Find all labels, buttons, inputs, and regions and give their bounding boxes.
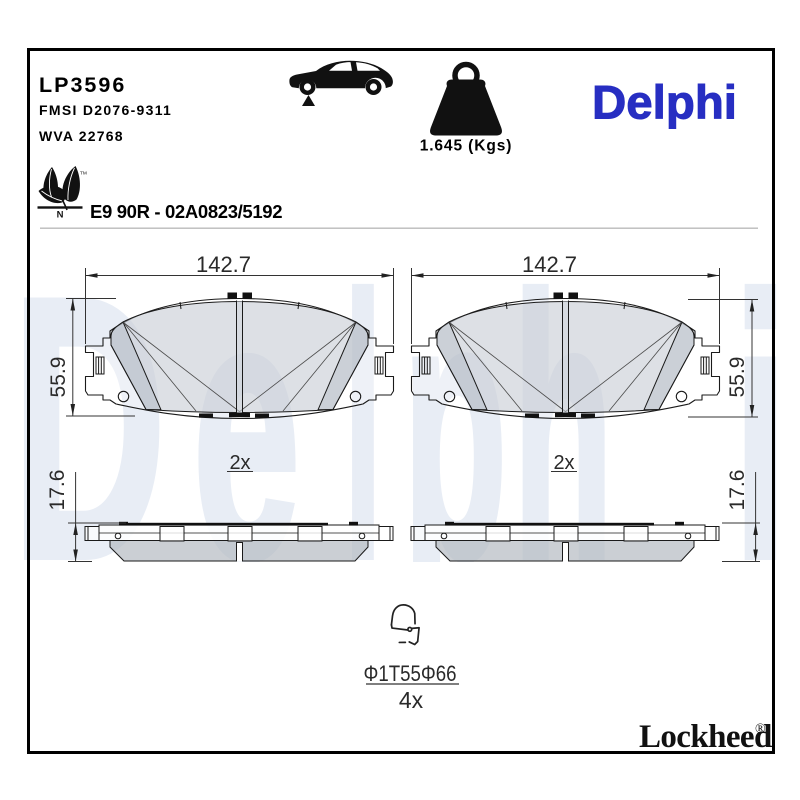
svg-text:FMSI D2076-9311: FMSI D2076-9311 — [39, 102, 172, 118]
svg-text:55.9: 55.9 — [47, 357, 70, 398]
svg-text:1.645 (Kgs): 1.645 (Kgs) — [420, 138, 513, 155]
svg-text:TM: TM — [80, 171, 87, 177]
svg-text:2x: 2x — [229, 452, 250, 474]
svg-text:Delphi: Delphi — [592, 76, 737, 129]
svg-text:142.7: 142.7 — [522, 252, 577, 277]
svg-text:55.9: 55.9 — [726, 357, 749, 398]
svg-text:2x: 2x — [553, 452, 574, 474]
svg-text:142.7: 142.7 — [196, 252, 251, 277]
svg-text:17.6: 17.6 — [726, 470, 749, 511]
svg-text:Lockheed: Lockheed — [639, 719, 772, 755]
svg-text:Φ1T55Φ66: Φ1T55Φ66 — [364, 661, 457, 686]
svg-text:WVA 22768: WVA 22768 — [39, 128, 124, 144]
svg-text:LP3596: LP3596 — [39, 73, 126, 97]
svg-text:®: ® — [755, 722, 766, 737]
svg-text:N: N — [57, 210, 64, 221]
svg-text:4x: 4x — [399, 687, 424, 713]
svg-text:E9 90R - 02A0823/5192: E9 90R - 02A0823/5192 — [90, 201, 282, 222]
svg-text:17.6: 17.6 — [46, 470, 69, 511]
